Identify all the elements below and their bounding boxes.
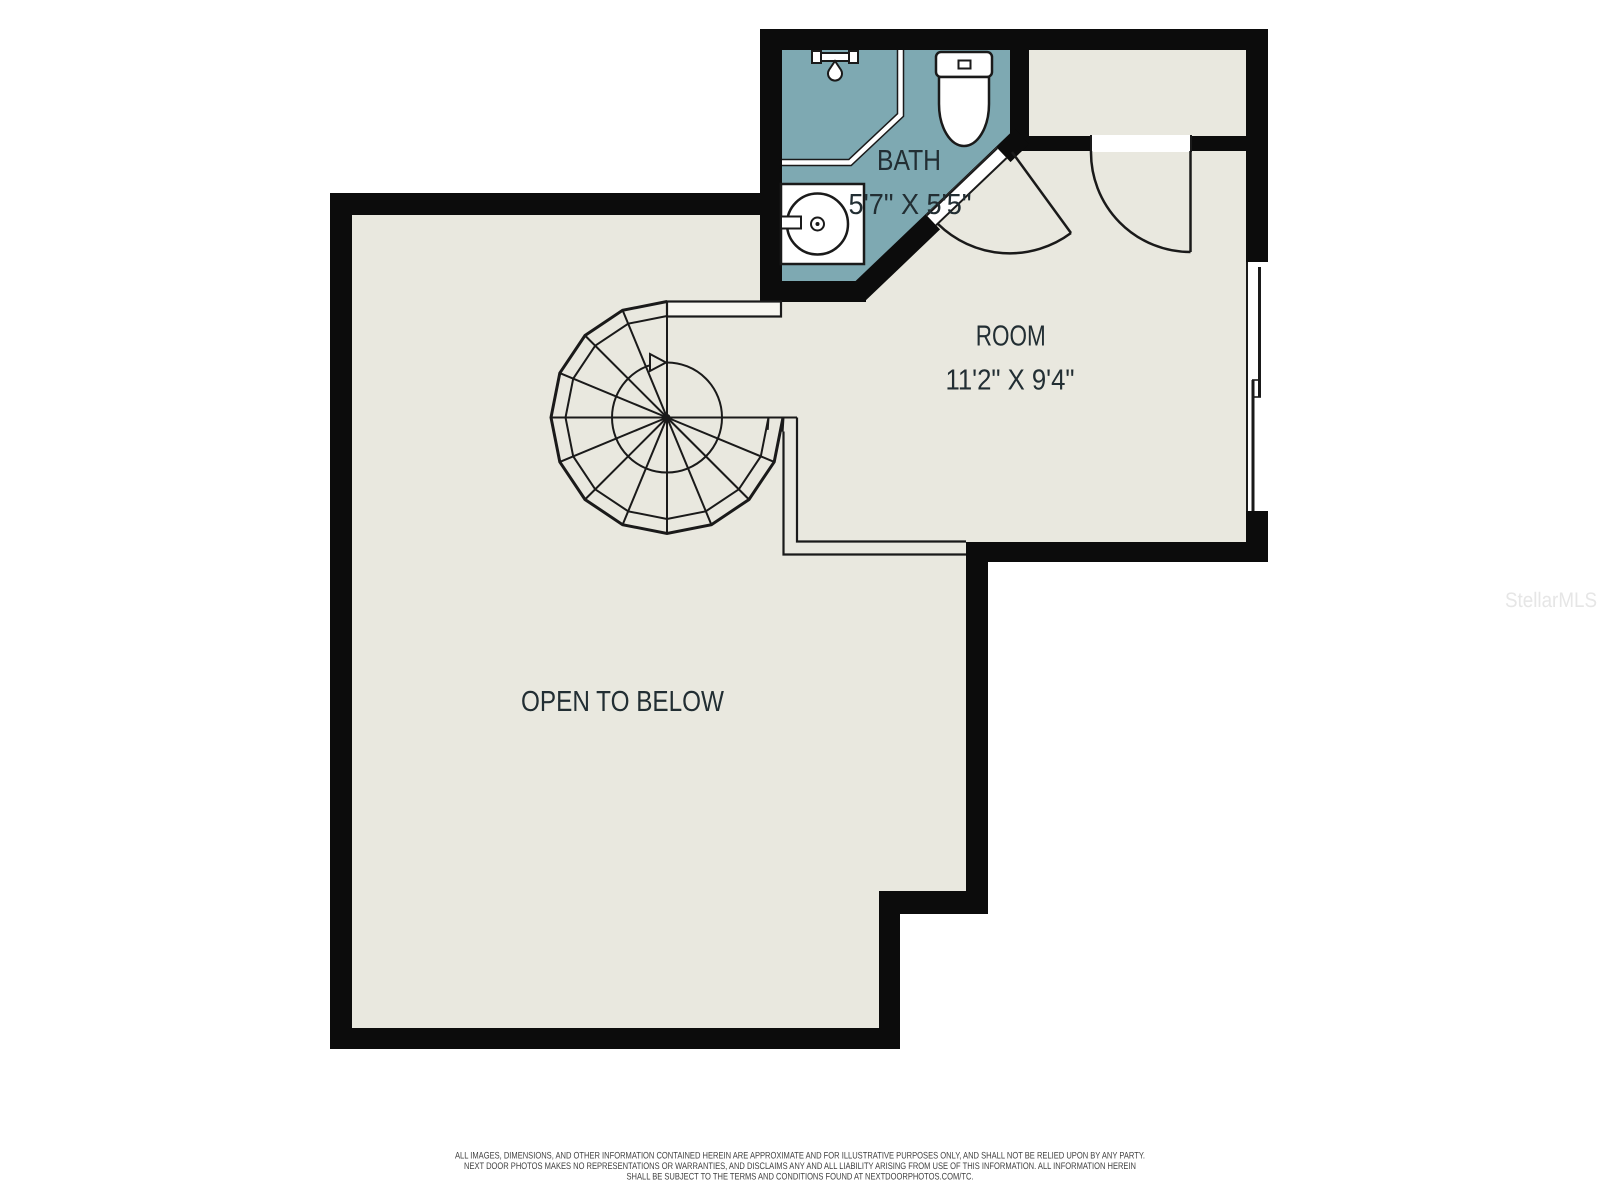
- svg-text:11'2" X 9'4": 11'2" X 9'4": [946, 365, 1075, 397]
- svg-text:5'7" X 5'5": 5'7" X 5'5": [849, 189, 972, 221]
- svg-text:StellarMLS: StellarMLS: [1505, 589, 1597, 612]
- svg-text:OPEN TO BELOW: OPEN TO BELOW: [521, 686, 725, 718]
- svg-text:ROOM: ROOM: [976, 321, 1046, 353]
- svg-text:SHALL BE SUBJECT TO THE TERMS: SHALL BE SUBJECT TO THE TERMS AND CONDIT…: [627, 1172, 974, 1183]
- svg-text:ALL IMAGES, DIMENSIONS, AND OT: ALL IMAGES, DIMENSIONS, AND OTHER INFORM…: [455, 1151, 1145, 1162]
- svg-text:NEXT DOOR PHOTOS MAKES NO REPR: NEXT DOOR PHOTOS MAKES NO REPRESENTATION…: [464, 1161, 1136, 1172]
- svg-text:BATH: BATH: [877, 145, 941, 177]
